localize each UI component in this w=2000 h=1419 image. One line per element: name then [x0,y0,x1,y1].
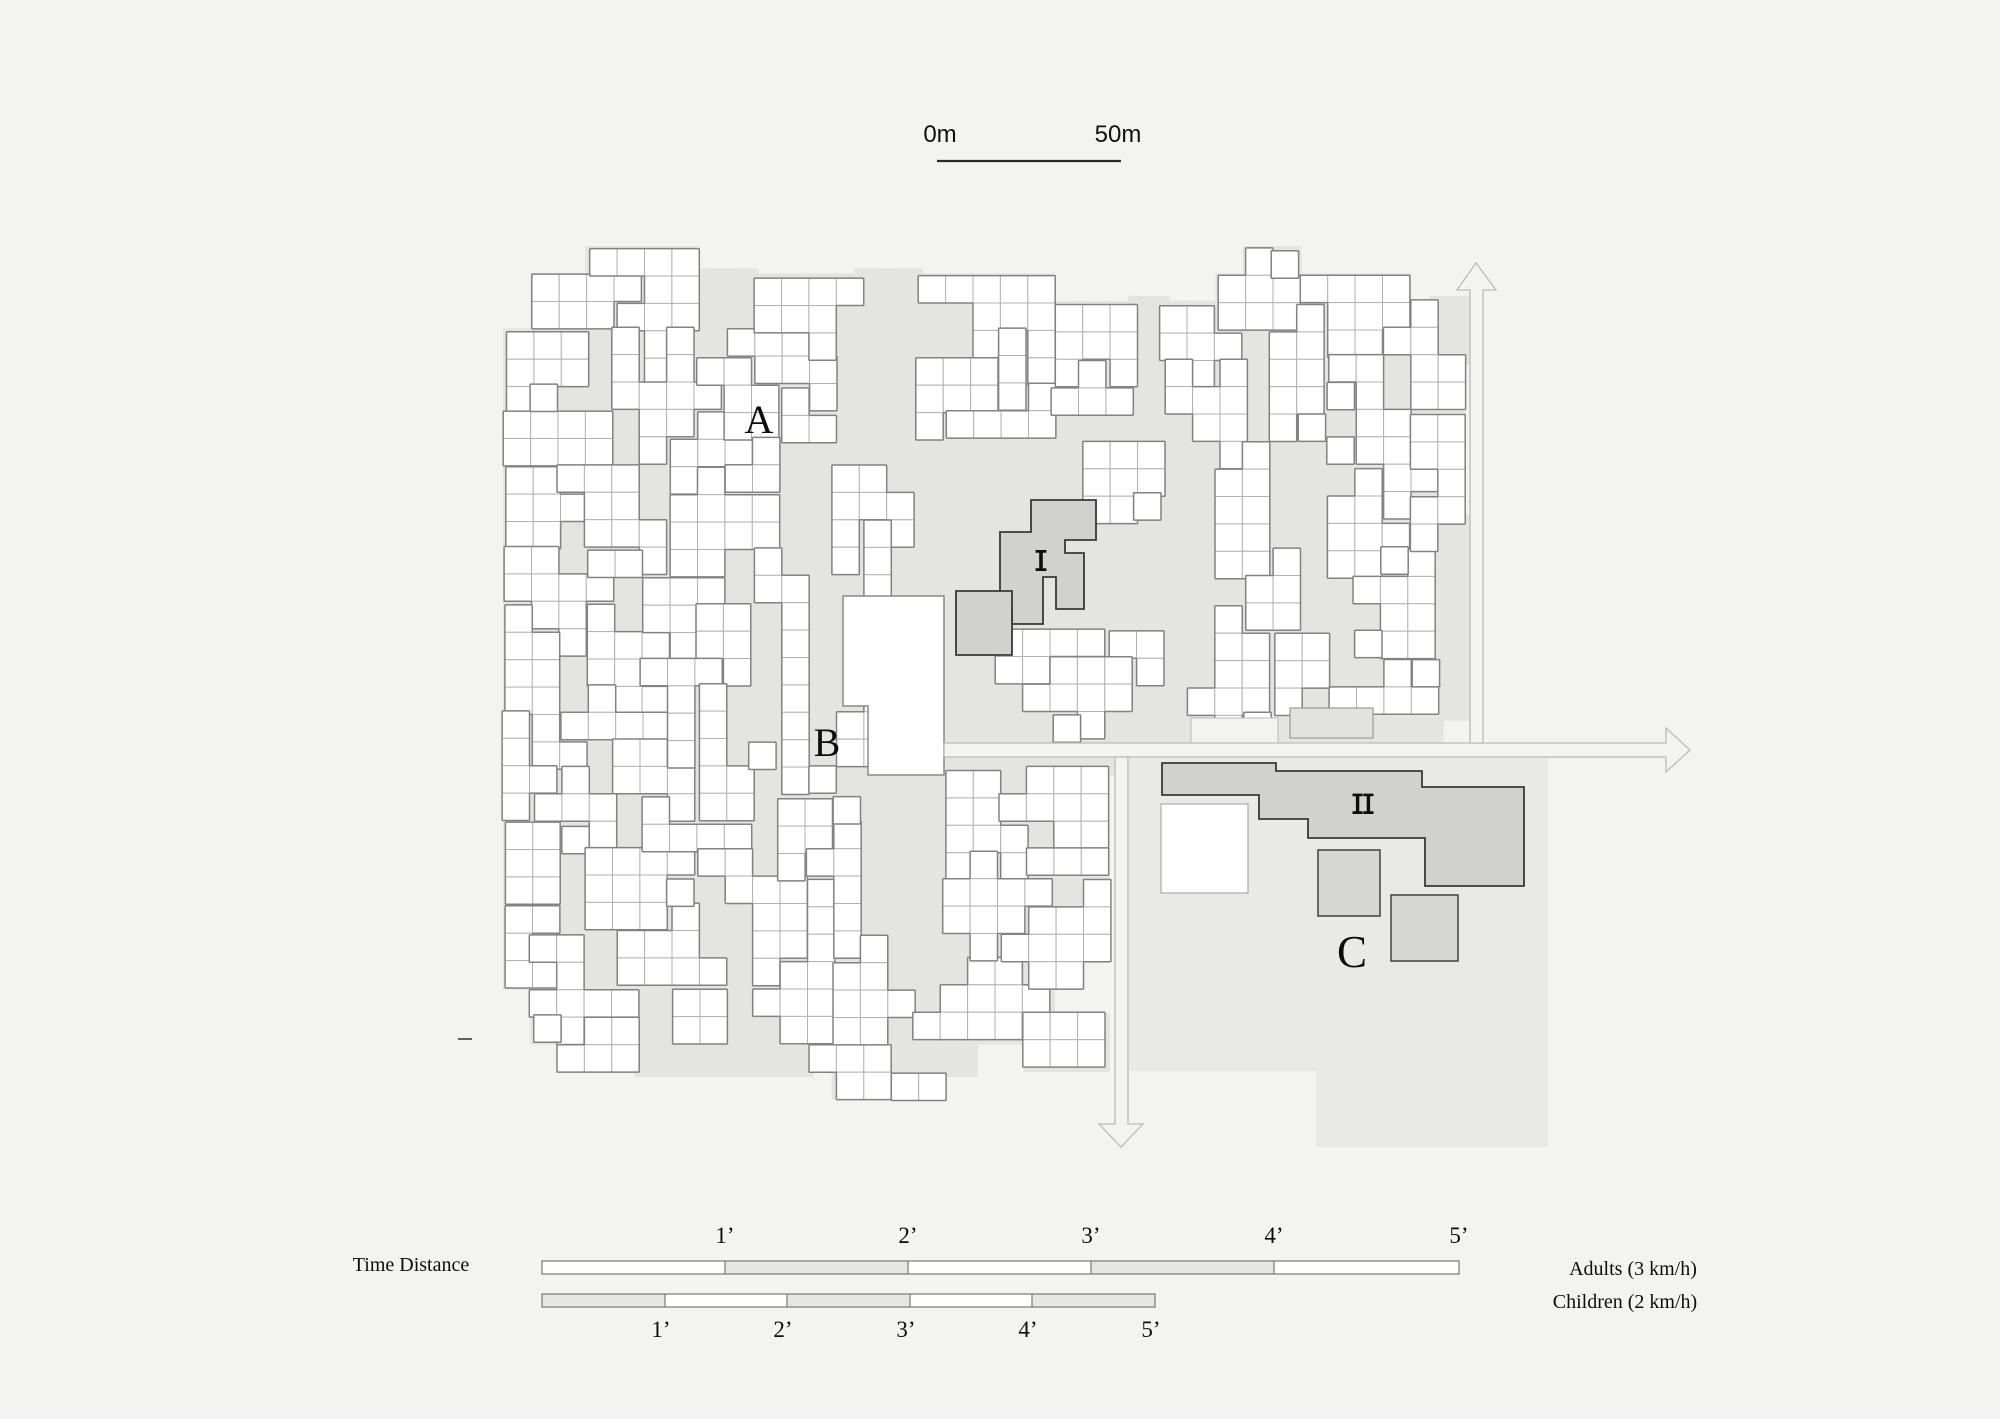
svg-text:1’: 1’ [651,1317,670,1342]
svg-text:50m: 50m [1095,121,1142,148]
svg-text:C: C [1337,927,1367,977]
svg-text:3’: 3’ [1081,1223,1100,1248]
svg-text:2’: 2’ [773,1317,792,1342]
svg-text:2’: 2’ [898,1223,917,1248]
svg-text:A: A [745,397,774,442]
svg-text:Time Distance: Time Distance [353,1254,470,1276]
svg-text:3’: 3’ [896,1317,915,1342]
svg-text:5’: 5’ [1141,1317,1160,1342]
svg-text:Adults (3 km/h): Adults (3 km/h) [1569,1258,1697,1280]
svg-text:4’: 4’ [1018,1317,1037,1342]
svg-text:B: B [814,720,841,765]
svg-text:4’: 4’ [1264,1223,1283,1248]
svg-text:1’: 1’ [715,1223,734,1248]
svg-text:5’: 5’ [1449,1223,1468,1248]
svg-text:0m: 0m [923,121,956,148]
svg-text:Children (2 km/h): Children (2 km/h) [1553,1291,1697,1313]
